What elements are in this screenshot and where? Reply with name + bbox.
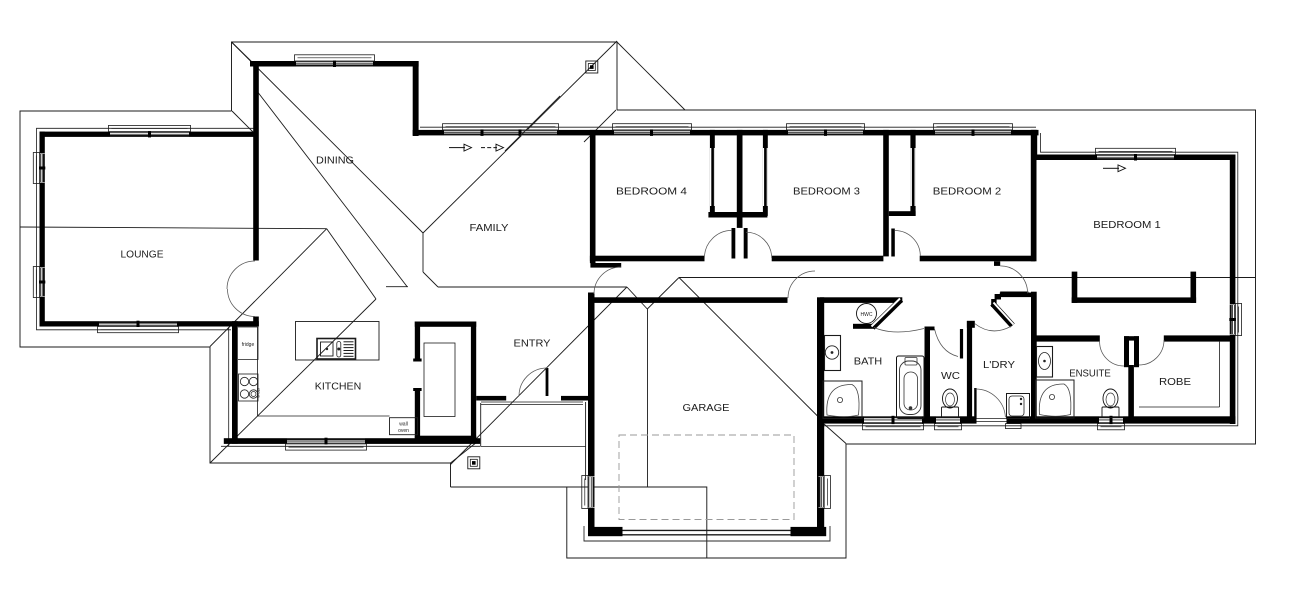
svg-text:oven: oven [398, 428, 409, 434]
svg-text:KITCHEN: KITCHEN [315, 380, 362, 392]
svg-text:BEDROOM 2: BEDROOM 2 [933, 185, 1002, 197]
svg-text:fridge: fridge [242, 342, 255, 348]
svg-text:stove: stove [256, 388, 261, 399]
svg-text:ROBE: ROBE [1159, 376, 1191, 388]
svg-text:GARAGE: GARAGE [683, 402, 730, 414]
svg-text:L'DRY: L'DRY [983, 359, 1015, 371]
svg-text:BEDROOM 3: BEDROOM 3 [793, 185, 860, 197]
svg-text:BEDROOM 1: BEDROOM 1 [1093, 219, 1161, 231]
svg-text:ENSUITE: ENSUITE [1069, 368, 1111, 380]
svg-text:DINING: DINING [316, 155, 354, 167]
svg-text:FAMILY: FAMILY [470, 222, 509, 234]
svg-text:LOUNGE: LOUNGE [121, 249, 164, 261]
svg-text:BEDROOM 4: BEDROOM 4 [616, 185, 687, 197]
svg-text:HWC: HWC [861, 312, 873, 318]
svg-text:WC: WC [941, 370, 960, 382]
svg-text:wall: wall [399, 422, 408, 428]
svg-text:BATH: BATH [854, 356, 883, 368]
svg-text:ENTRY: ENTRY [514, 338, 551, 350]
